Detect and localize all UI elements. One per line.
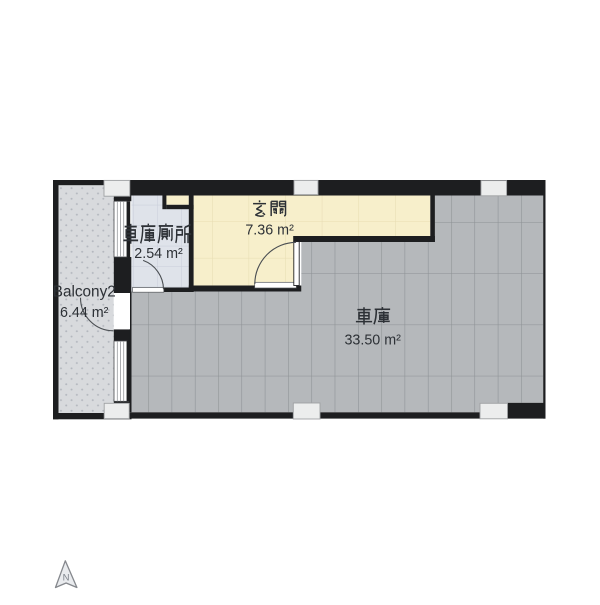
svg-text:N: N <box>63 573 70 584</box>
svg-text:6.44 m²: 6.44 m² <box>60 305 109 321</box>
svg-text:2.54 m²: 2.54 m² <box>134 246 183 262</box>
svg-text:33.50 m²: 33.50 m² <box>344 333 401 349</box>
svg-text:Balcony2: Balcony2 <box>53 284 116 301</box>
svg-text:7.36 m²: 7.36 m² <box>245 222 294 238</box>
